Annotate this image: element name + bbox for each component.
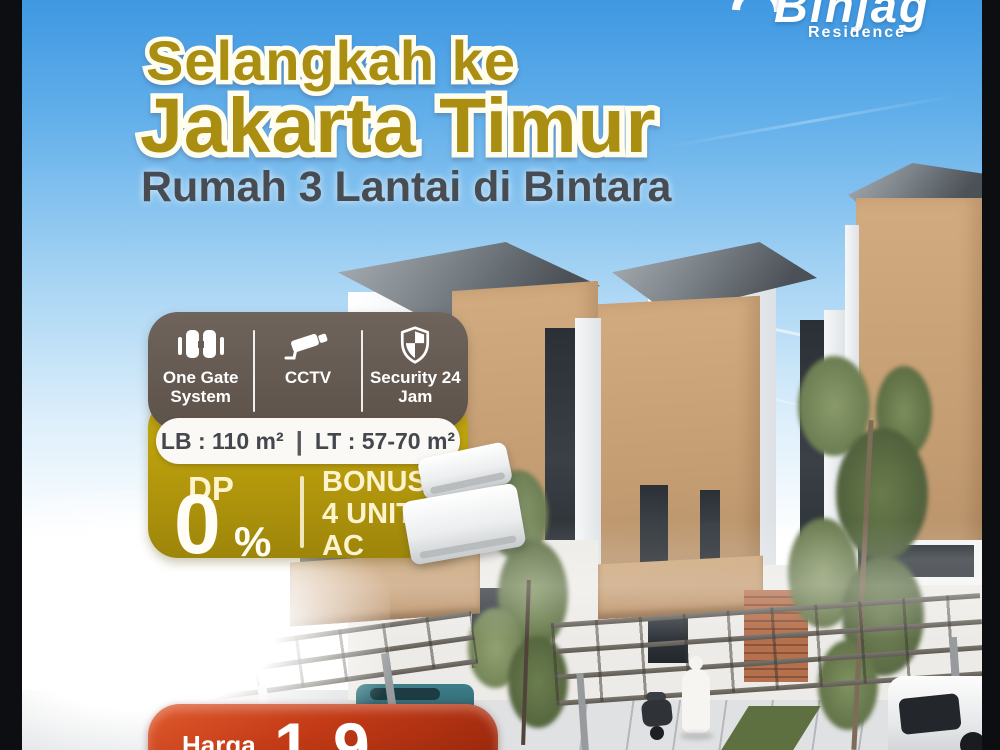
letterbox-bar-left [0, 0, 22, 750]
dp-unit: % [234, 518, 271, 566]
dp-value: 0 [174, 482, 221, 566]
shield-icon [396, 326, 434, 364]
bonus-line1: BONUS [322, 467, 427, 499]
gate-icon [175, 326, 227, 364]
price-label: Harga [182, 730, 256, 750]
headline-subtitle: Rumah 3 Lantai di Bintara [141, 163, 671, 212]
land-area-value: LT : 57-70 m² [315, 428, 455, 455]
headline-line2-text: Jakarta Timur [140, 82, 657, 171]
cctv-icon [282, 326, 334, 364]
property-ad-poster: Binjag Residence Selangkah ke Selangkah … [0, 0, 1000, 750]
contrail-streak [662, 94, 958, 149]
features-panel: One Gate System CCTV [148, 312, 468, 430]
feature-cctv: CCTV [255, 312, 360, 430]
specs-divider: | [296, 426, 303, 457]
person-silhouette [680, 656, 714, 746]
scooter [642, 684, 676, 750]
feature-one-gate: One Gate System [148, 312, 253, 430]
price-suffix: M [400, 742, 437, 750]
promo-divider [300, 476, 304, 548]
specs-pill: LB : 110 m² | LT : 57-70 m² [156, 418, 460, 464]
building-area-value: LB : 110 m² [161, 428, 284, 455]
price-badge: Harga 1,9 M [148, 704, 498, 750]
letterbox-bar-right [982, 0, 1000, 750]
feature-security: Security 24 Jam [363, 312, 468, 430]
white-car-window [898, 693, 961, 735]
price-value: 1,9 [274, 708, 372, 750]
brand-tagline: Residence [808, 24, 906, 42]
